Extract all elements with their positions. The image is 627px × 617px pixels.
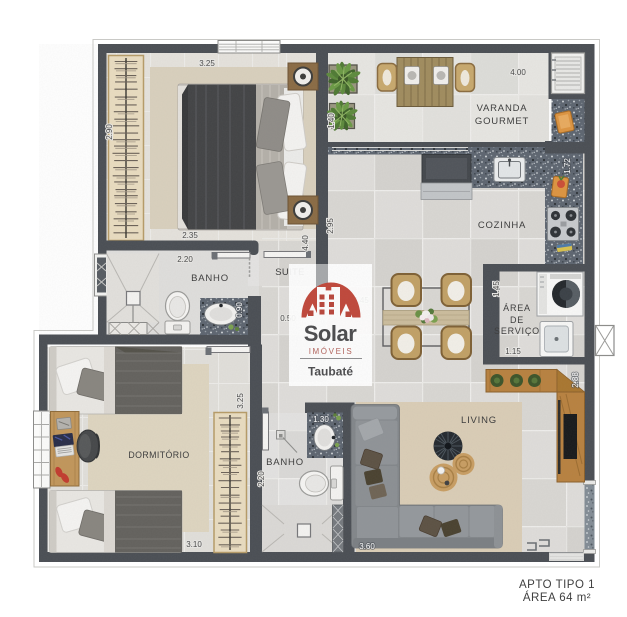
svg-text:ÁREA 64 m²: ÁREA 64 m² (523, 591, 591, 604)
svg-text:APTO TIPO 1: APTO TIPO 1 (519, 579, 595, 591)
